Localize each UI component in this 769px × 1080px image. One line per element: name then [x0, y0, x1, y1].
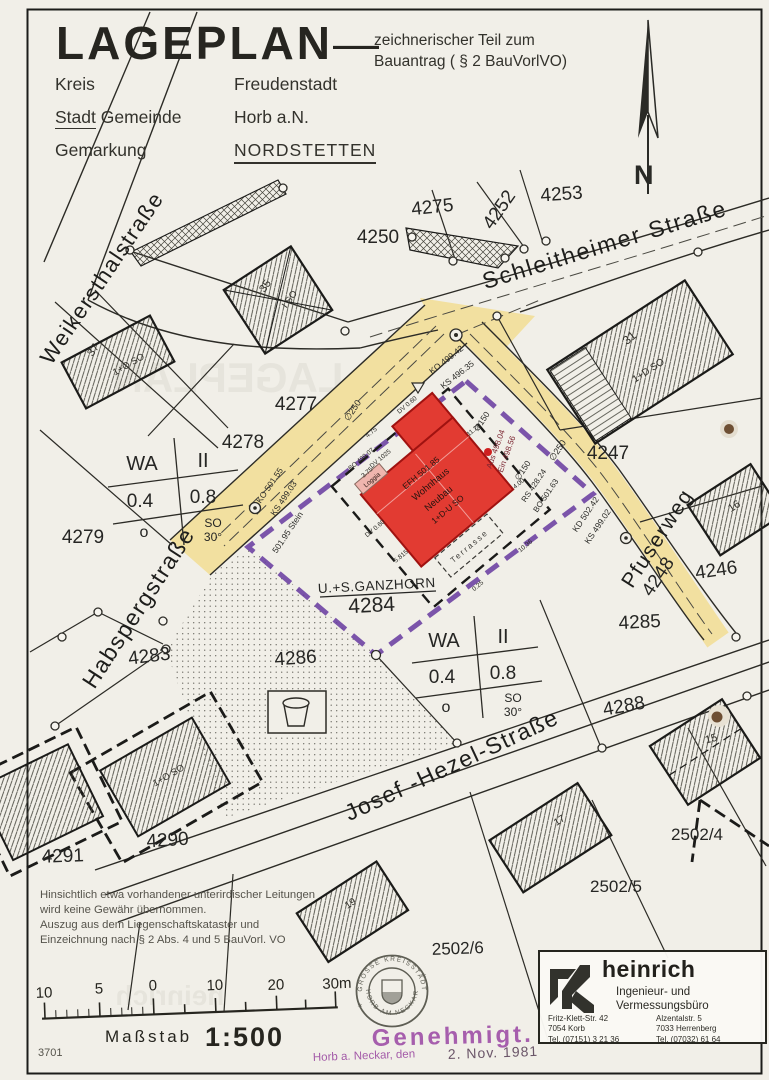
parcel-4277: 4277: [275, 394, 317, 415]
scale-5: 5: [94, 980, 103, 997]
firm-name: heinrich: [602, 956, 695, 983]
heinrich-logo: [546, 957, 600, 1013]
note-line4: Einzeichnung nach § 2 Abs. 4 und 5 BauVo…: [40, 933, 370, 948]
wa2-so: SO: [504, 691, 521, 705]
stadt-label: Stadt: [55, 107, 96, 129]
parcel-4288: 4288: [601, 693, 646, 721]
wa2-grz: 0.4: [429, 667, 456, 688]
parcel-2502-5: 2502/5: [590, 877, 642, 896]
firm-role-line1: Ingenieur- und: [616, 986, 709, 1000]
masstab-label: Maßstab: [105, 1027, 192, 1046]
owner-name: U.+S.GANZHORN: [318, 575, 437, 596]
scale-20: 20: [267, 976, 284, 994]
svg-text:✶: ✶: [357, 1002, 363, 1010]
street-label-schleitheimer: Schleitheimer Straße: [479, 195, 730, 294]
addr1-city: 7054 Korb: [548, 1024, 619, 1034]
scale-0: 0: [148, 977, 157, 994]
addr1-street: Fritz-Klett-Str. 42: [548, 1014, 619, 1024]
note-line1: Hinsichtlich etwa vorhandener unterirdis…: [40, 888, 370, 903]
seal-top-text: GROSSE KREISSTADT: [357, 956, 427, 992]
wa-table-2: WA II 0.4 0.8 o SO 30°: [412, 616, 542, 719]
north-letter: N: [634, 160, 654, 190]
wa1-gfz: 0.8: [190, 487, 216, 508]
title-text: LAGEPLAN: [56, 17, 333, 69]
scale-10-right: 10: [206, 977, 223, 995]
wa2-gfz: 0.8: [490, 663, 516, 684]
subtitle: zeichnerischer Teil zum Bauantrag ( § 2 …: [374, 31, 567, 73]
gemeinde-label: Gemeinde: [101, 107, 182, 127]
wa2-o: o: [442, 699, 451, 716]
city-seal: GROSSE KREISSTADT HORB AM NECKAR ✶ ✶: [357, 956, 428, 1027]
firm-role-line2: Vermessungsbüro: [616, 1000, 709, 1014]
parcel-4246: 4246: [694, 557, 739, 584]
scale-ratio: 1:500: [205, 1022, 284, 1052]
wa1-grz: 0.4: [127, 491, 154, 512]
parcel-4250: 4250: [357, 227, 399, 248]
surveyor-firm-box: heinrich Ingenieur- und Vermessungsbüro …: [538, 950, 767, 1044]
survey-d250-pfuser: ∅250: [547, 438, 568, 463]
scale-10-left: 10: [35, 984, 52, 1002]
building-35: [224, 246, 332, 353]
subtitle-line2: Bauantrag ( § 2 BauVorlVO): [374, 52, 567, 73]
wa1-use: WA: [126, 453, 158, 475]
wa1-floors: II: [197, 450, 208, 472]
note-line2: wird keine Gewähr übernommen.: [40, 903, 370, 918]
parcel-4290: 4290: [146, 829, 190, 853]
wa1-o: o: [140, 524, 149, 541]
parcel-2502-6: 2502/6: [431, 938, 484, 959]
gemarkung-label: Gemarkung: [55, 140, 146, 161]
building-15: [650, 699, 760, 805]
gemarkung-value: NORDSTETTEN: [234, 140, 376, 164]
parcel-4283: 4283: [127, 644, 172, 670]
north-arrow: N: [634, 20, 658, 194]
disclaimer-notes: Hinsichtlich etwa vorhandener unterirdis…: [40, 888, 370, 948]
parcel-4291: 4291: [41, 845, 84, 867]
parcel-4286: 4286: [274, 647, 318, 671]
parcel-4247: 4247: [587, 443, 629, 464]
owner-label-group: U.+S.GANZHORN: [318, 575, 437, 597]
building-17: [490, 783, 612, 892]
parcel-4279: 4279: [62, 527, 104, 548]
svg-text:✶: ✶: [421, 972, 427, 980]
parcel-4278: 4278: [222, 432, 264, 453]
scanned-site-plan-page: { "header": { "title": "LAGEPLAN", "dash…: [0, 0, 769, 1080]
wa2-floors: II: [497, 626, 508, 648]
stadt-value: Horb a.N.: [234, 107, 309, 128]
wa1-deg: 30°: [204, 530, 222, 544]
scale-30m: 30m: [322, 975, 352, 993]
wa2-deg: 30°: [504, 705, 522, 719]
addr1-tel: Tel. (07151) 3 21 36: [548, 1035, 619, 1045]
survey-d150-b: ∅150: [471, 409, 492, 433]
sheet-number: 3701: [38, 1047, 62, 1059]
addr2-city: 7033 Herrenberg: [656, 1024, 721, 1034]
firm-address-herrenberg: Alzentalstr. 5 7033 Herrenberg Tel. (070…: [656, 1014, 721, 1045]
approval-place: Horb a. Neckar, den: [313, 1048, 416, 1064]
subtitle-line1: zeichnerischer Teil zum: [374, 31, 567, 52]
wa1-so: SO: [204, 516, 221, 530]
page-title: LAGEPLAN—: [56, 16, 382, 70]
addr2-street: Alzentalstr. 5: [656, 1014, 721, 1024]
parcel-4285: 4285: [618, 611, 661, 634]
parcel-4275: 4275: [410, 195, 454, 220]
wa2-use: WA: [428, 630, 460, 652]
addr2-tel: Tel. (07032) 61 64: [656, 1035, 721, 1045]
well-symbol: [268, 691, 326, 733]
firm-role: Ingenieur- und Vermessungsbüro: [616, 986, 709, 1014]
approval-stamp: Genehmigt. Horb a. Neckar, den 2. Nov. 1…: [313, 1021, 539, 1064]
parcel-4253: 4253: [540, 183, 584, 207]
parcel-4284: 4284: [348, 593, 396, 618]
firm-address-korb: Fritz-Klett-Str. 42 7054 Korb Tel. (0715…: [548, 1014, 619, 1045]
kreis-label: Kreis: [55, 74, 95, 95]
kreis-value: Freudenstadt: [234, 74, 337, 95]
survey-d150-a: ∅150: [512, 458, 533, 482]
parcel-2502-4: 2502/4: [671, 825, 723, 844]
svg-text:GROSSE KREISSTADT: GROSSE KREISSTADT: [357, 956, 427, 992]
note-line3: Auszug aus dem Liegenschaftskataster und: [40, 918, 370, 933]
building-31: [547, 280, 732, 443]
approval-date: 2. Nov. 1981: [448, 1043, 539, 1062]
